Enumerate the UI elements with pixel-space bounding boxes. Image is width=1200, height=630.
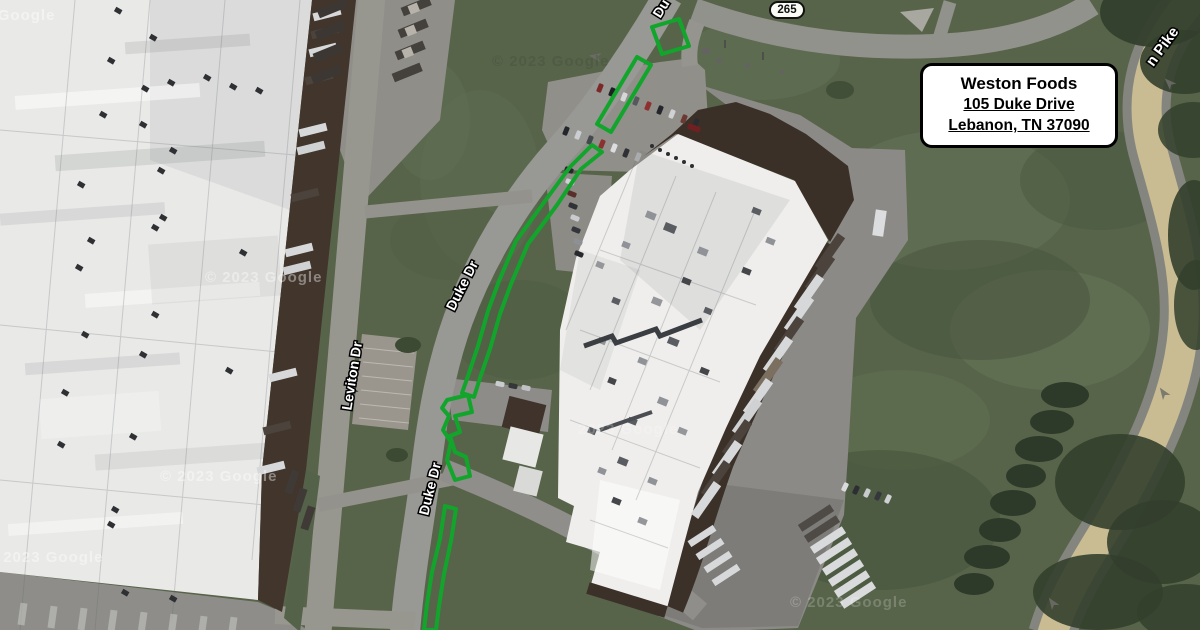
satellite-map-canvas: © 2023 Google© 2023 Google© 2023 Google©…: [0, 0, 1200, 630]
info-box-address-line1: 105 Duke Drive: [927, 95, 1111, 116]
info-box-address-line2: Lebanon, TN 37090: [927, 116, 1111, 137]
google-watermark: © 2023 Google: [0, 7, 55, 24]
info-box-title: Weston Foods: [927, 73, 1111, 95]
google-watermark: 2023 Google: [578, 421, 678, 438]
route-265-shield: 265: [769, 1, 805, 19]
google-watermark: © 2023 Google: [492, 53, 609, 70]
google-watermark: © 2023 Google: [205, 269, 322, 286]
route-shield-number: 265: [777, 4, 796, 16]
google-watermark: © 2023 Google: [790, 594, 907, 611]
google-watermark: © 2023 Google: [0, 549, 103, 566]
google-watermark: © 2023 Google: [160, 468, 277, 485]
info-box: Weston Foods 105 Duke Drive Lebanon, TN …: [920, 63, 1118, 148]
duke-265-ramp: [689, 22, 697, 66]
